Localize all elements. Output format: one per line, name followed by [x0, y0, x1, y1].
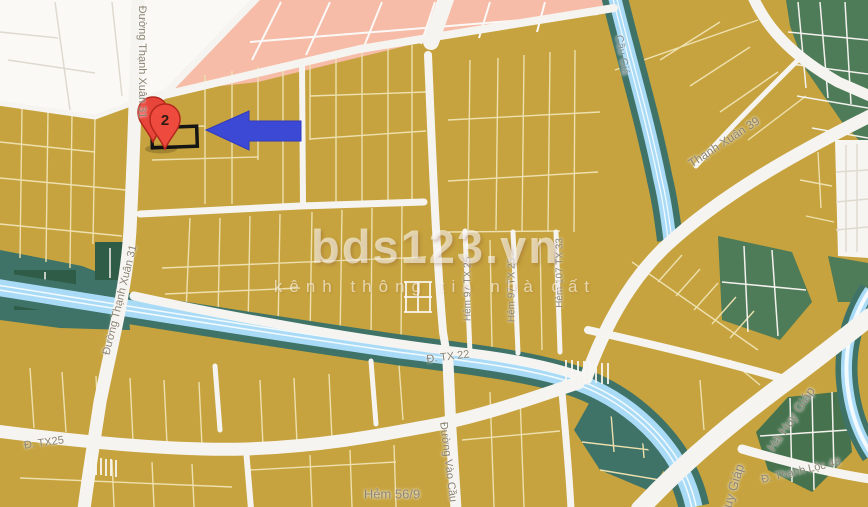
marker-shadow — [145, 145, 177, 154]
map-canvas[interactable]: 2 Đường Thạnh Xuân 31 Đường Thạnh Xuân 3… — [0, 0, 868, 507]
map-graphics: 2 — [0, 0, 868, 507]
marker-count-label: 2 — [161, 112, 169, 129]
